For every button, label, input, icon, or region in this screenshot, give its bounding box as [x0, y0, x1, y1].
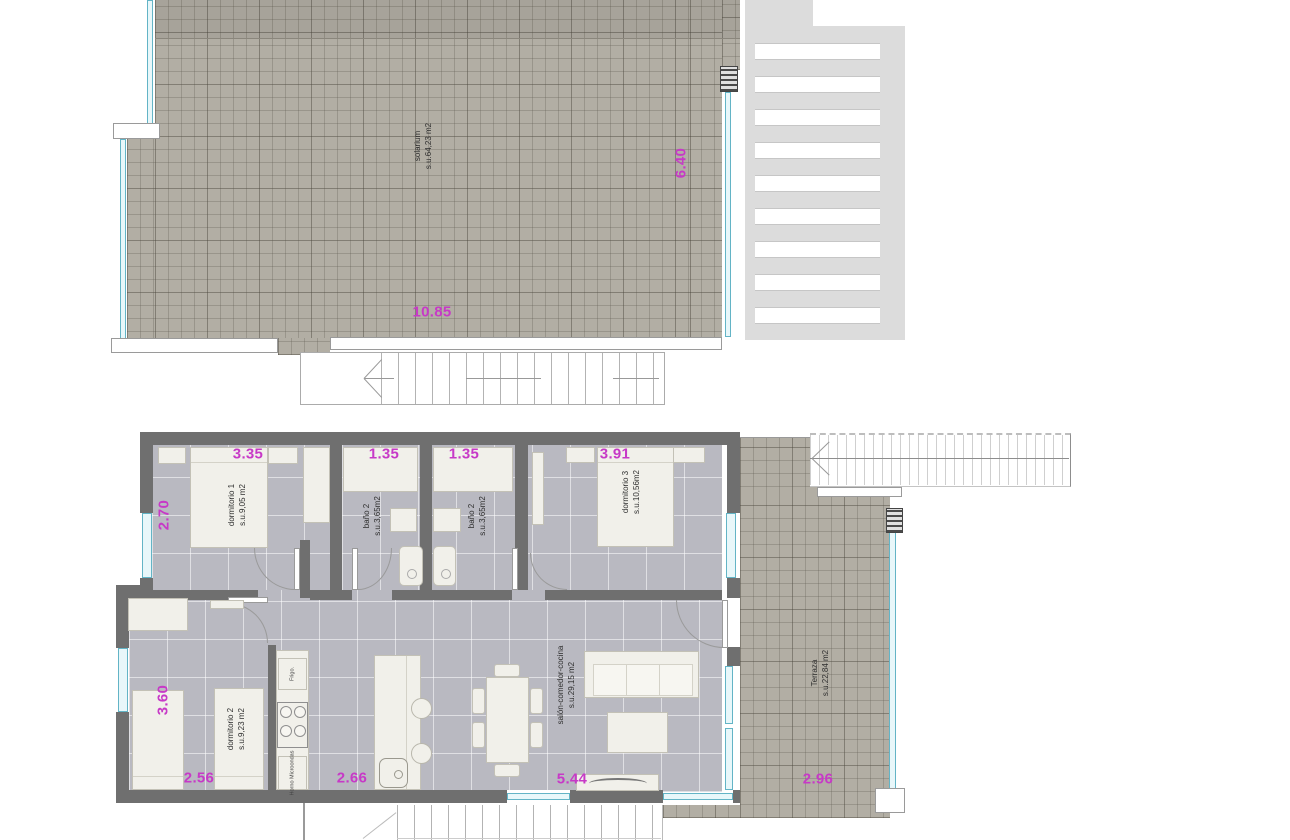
terraza-dim: 2.96	[803, 771, 833, 788]
solarium-height-dim: 6.40	[673, 148, 690, 178]
terraza-access-hatch-icon	[886, 508, 903, 533]
window-dormitorio3	[726, 513, 736, 578]
dim-d3: 3.91	[600, 446, 630, 463]
chair	[530, 688, 543, 714]
toilet-banob	[433, 546, 456, 586]
floor-plan-canvas: solariums.u.64,23 m2 6.40 10.85 Terrazas…	[0, 0, 1290, 840]
sofa	[584, 651, 699, 698]
door-leaf-banob	[512, 548, 518, 590]
label-dormitorio2: dormitorio 2s.u.9,23 m2	[226, 708, 248, 750]
sink	[379, 758, 408, 788]
solarium-structure-line	[690, 0, 691, 345]
solarium-glass-rail-left-lower	[120, 139, 126, 345]
exterior-stairs	[810, 433, 1071, 487]
stair-side-wall	[303, 803, 305, 840]
stool	[411, 743, 432, 764]
dim-banob: 1.35	[449, 446, 479, 463]
oven-label: Horno Microondas	[290, 751, 297, 796]
terraza-glass-rail	[889, 508, 896, 789]
terraza-label: Terrazas.u.22,84 m2	[810, 650, 832, 696]
wall-hall-b	[310, 590, 352, 600]
wardrobe-dormitorio3	[532, 452, 544, 525]
wall-right-b	[727, 578, 740, 598]
label-dormitorio3: dormitorio 3s.u.10,56m2	[621, 470, 643, 514]
vanity-banob	[433, 508, 461, 532]
label-banob: baño 2s.u.3,65m2	[467, 496, 489, 536]
wall-d1-banoa	[330, 445, 342, 590]
pergola-notch	[813, 0, 905, 26]
wardrobe-dormitorio2	[128, 598, 188, 631]
tv-unit	[576, 774, 659, 791]
dim-d1-top: 3.35	[233, 446, 263, 463]
terraza-floor-top	[740, 437, 817, 500]
dim-d1-left: 2.70	[156, 500, 173, 530]
glass-door-salon-bottom	[663, 793, 733, 800]
chair	[530, 722, 543, 748]
nightstand	[673, 447, 705, 463]
solarium-width-dim: 10.85	[412, 304, 451, 321]
solarium-floor	[155, 0, 722, 345]
wall-right-c	[727, 647, 740, 666]
wall-bottom-corner	[733, 790, 740, 803]
solarium-glass-rail-left-upper	[147, 0, 153, 125]
wall-left-upper-a	[140, 445, 153, 513]
window-salon-bottom	[507, 793, 570, 800]
pergola-louvres	[755, 43, 880, 325]
solarium-parapet-right	[330, 337, 722, 350]
wall-top	[140, 432, 740, 445]
label-dormitorio1: dormitorio 1s.u.9,05 m2	[227, 484, 249, 526]
solarium-upper-band	[155, 0, 740, 39]
toilet-banoa	[399, 546, 423, 586]
stool	[411, 698, 432, 719]
dim-salon: 5.44	[557, 771, 587, 788]
solarium-floor-left-strip	[127, 133, 155, 345]
dim-d2-left: 3.60	[155, 685, 172, 715]
vanity-banoa	[390, 508, 417, 532]
lower-stairs	[363, 805, 663, 840]
coffee-table	[607, 712, 668, 753]
pergola-louvre-area	[745, 0, 905, 340]
wall-hall-d	[545, 590, 722, 600]
hob	[277, 702, 308, 748]
label-banoa: baño 2s.u.3,65m2	[362, 496, 384, 536]
nightstand	[158, 447, 186, 464]
nightstand	[566, 447, 595, 463]
wall-bottom-b	[570, 790, 663, 803]
hall-console	[210, 600, 244, 609]
wall-hall-c	[392, 590, 512, 600]
solarium-parapet-left	[111, 338, 278, 353]
nightstand	[268, 447, 298, 464]
solarium-label: solariums.u.64,23 m2	[413, 123, 435, 169]
terraza-parapet	[817, 487, 902, 497]
chair	[494, 764, 520, 777]
fridge-label: Frigo.	[290, 667, 297, 681]
dim-banoa: 1.35	[369, 446, 399, 463]
dining-table	[486, 677, 529, 763]
wall-d2-kitchen	[268, 645, 276, 790]
chair	[472, 688, 485, 714]
terraza-corner-pillar	[875, 788, 905, 813]
dim-kitchen: 2.66	[337, 770, 367, 787]
upper-stairs	[300, 352, 665, 405]
solarium-glass-rail-right	[725, 92, 731, 337]
glass-salon-right-a	[725, 666, 733, 724]
solarium-access-hatch-icon	[720, 66, 738, 92]
wall-bottom-a	[116, 790, 507, 803]
window-dormitorio1	[142, 513, 152, 578]
solarium-left-pillar	[113, 123, 160, 139]
window-dormitorio2	[118, 648, 128, 712]
glass-salon-right-b	[725, 728, 733, 790]
wardrobe-dormitorio1	[303, 447, 330, 523]
chair	[472, 722, 485, 748]
wall-right-a	[727, 445, 740, 513]
dim-d2-bottom: 2.56	[184, 770, 214, 787]
label-salon: salón-comedor-cocinas.u.29,15 m2	[556, 646, 578, 725]
terraza-floor-wrap	[663, 805, 740, 818]
chair	[494, 664, 520, 677]
wall-d1-stub	[300, 540, 310, 598]
